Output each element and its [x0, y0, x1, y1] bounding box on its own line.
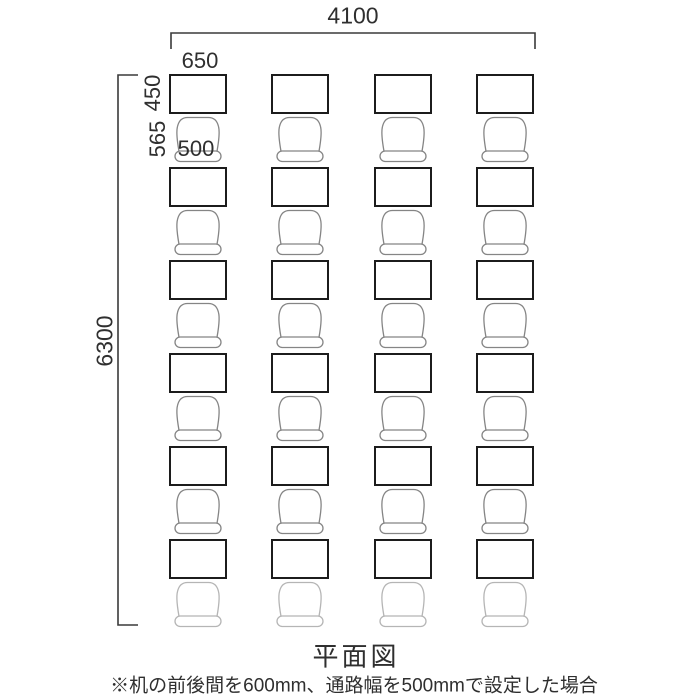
chair-backrest [277, 151, 323, 162]
chair-backrest [277, 430, 323, 441]
chair [379, 580, 427, 628]
chair [276, 487, 324, 535]
chair-backrest [380, 244, 426, 255]
chair [481, 580, 529, 628]
chair [481, 394, 529, 442]
chair [276, 301, 324, 349]
chair [174, 394, 222, 442]
diagram-note: ※机の前後間を600mm、通路幅を500mmで設定した場合 [110, 671, 598, 698]
chair-backrest [482, 430, 528, 441]
floor-plan-diagram: 4100 650 450 565 500 6300 平面図 ※机の前後間を600… [0, 0, 700, 700]
chair-backrest [380, 430, 426, 441]
chair [174, 580, 222, 628]
chair-backrest [277, 337, 323, 348]
desk [476, 74, 534, 114]
chair [481, 115, 529, 163]
chair [481, 208, 529, 256]
chair-backrest [175, 430, 221, 441]
desk [374, 260, 432, 300]
dim-label-desk-depth: 450 [142, 75, 164, 112]
chair-backrest [482, 151, 528, 162]
chair-backrest [277, 616, 323, 627]
desk [476, 353, 534, 393]
desk [374, 446, 432, 486]
chair-backrest [175, 616, 221, 627]
chair [276, 394, 324, 442]
width-dimension-bracket [171, 33, 535, 49]
desk [374, 539, 432, 579]
chair-backrest [175, 523, 221, 534]
chair [379, 208, 427, 256]
chair [379, 394, 427, 442]
chair-backrest [482, 523, 528, 534]
desk [476, 167, 534, 207]
desk [169, 167, 227, 207]
desk [169, 446, 227, 486]
desk [271, 353, 329, 393]
dim-label-desk-width: 650 [182, 50, 219, 72]
desk [476, 260, 534, 300]
desk [271, 74, 329, 114]
chair-backrest [380, 337, 426, 348]
desk [271, 446, 329, 486]
chair-backrest [482, 244, 528, 255]
chair-backrest [380, 616, 426, 627]
desk [169, 539, 227, 579]
dim-label-chair-width: 500 [178, 138, 215, 160]
chair [481, 301, 529, 349]
desk [374, 167, 432, 207]
desk [476, 539, 534, 579]
dim-label-total-width: 4100 [327, 5, 378, 28]
chair [174, 487, 222, 535]
chair-backrest [482, 616, 528, 627]
desk [476, 446, 534, 486]
chair [481, 487, 529, 535]
chair-backrest [277, 244, 323, 255]
diagram-title: 平面図 [312, 637, 399, 674]
chair-backrest [175, 244, 221, 255]
height-dimension-bracket [118, 75, 138, 625]
chair-backrest [175, 337, 221, 348]
dim-label-chair-pitch: 565 [147, 121, 169, 158]
chair [379, 115, 427, 163]
chair-backrest [380, 523, 426, 534]
desk [374, 353, 432, 393]
chair [276, 115, 324, 163]
dim-label-total-height: 6300 [94, 315, 117, 366]
chair [174, 301, 222, 349]
chair-backrest [380, 151, 426, 162]
desk [169, 353, 227, 393]
desk [271, 260, 329, 300]
desk [271, 539, 329, 579]
desk [169, 74, 227, 114]
chair [174, 208, 222, 256]
chair-backrest [277, 523, 323, 534]
chair [276, 208, 324, 256]
chair [379, 301, 427, 349]
desk [271, 167, 329, 207]
chair [379, 487, 427, 535]
chair-backrest [482, 337, 528, 348]
chair [276, 580, 324, 628]
desk [169, 260, 227, 300]
desk [374, 74, 432, 114]
